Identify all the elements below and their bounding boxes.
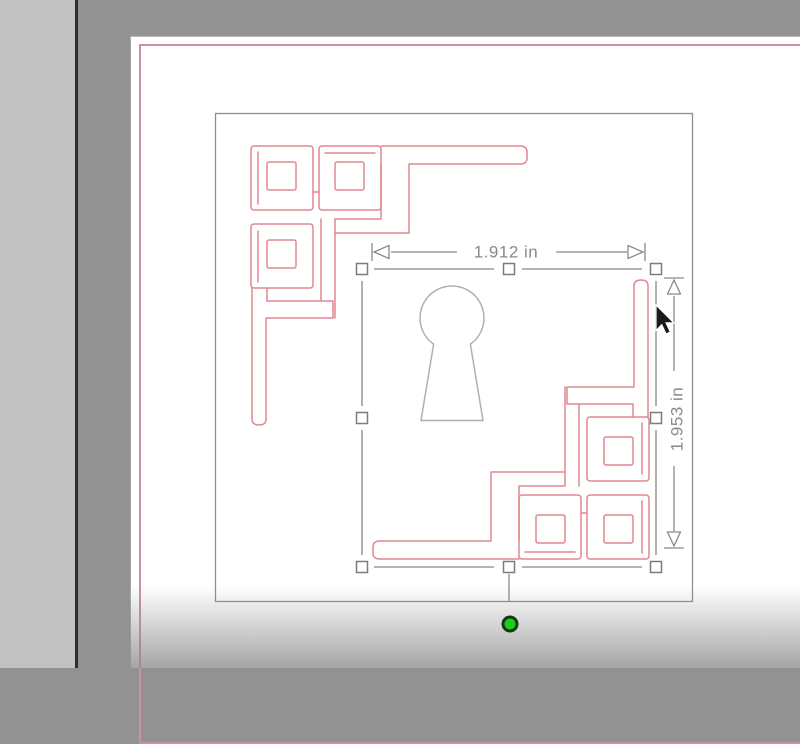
selection-handle-bottom-middle[interactable] (504, 562, 515, 573)
width-dim-right-arrow-icon (628, 246, 643, 259)
selection-handle-middle-left[interactable] (357, 413, 368, 424)
height-dim-up-arrow-icon (668, 280, 681, 294)
design-canvas-overlay: 1.912 in 1.953 in (0, 0, 800, 668)
width-dimension-label: 1.912 in (474, 243, 539, 262)
arrow-pointer-icon (656, 305, 674, 334)
selection-handle-bottom-left[interactable] (357, 562, 368, 573)
selection-handle-top-right[interactable] (651, 264, 662, 275)
keyhole-shape[interactable] (420, 286, 484, 420)
selection-handle-bottom-right[interactable] (651, 562, 662, 573)
width-dimension: 1.912 in (372, 243, 645, 262)
height-dimension-label: 1.953 in (668, 387, 687, 452)
selection-handle-middle-right[interactable] (651, 413, 662, 424)
selection-handle-top-left[interactable] (357, 264, 368, 275)
height-dim-down-arrow-icon (668, 532, 681, 546)
corner-flourish-bottom-right[interactable] (373, 280, 649, 559)
canvas-workspace: 1.912 in 1.953 in (0, 0, 800, 668)
corner-flourish-top-left[interactable] (251, 146, 527, 425)
width-dim-left-arrow-icon (374, 246, 389, 259)
selection-handle-top-middle[interactable] (504, 264, 515, 275)
rotation-handle[interactable] (503, 617, 517, 631)
design-group-bounding-box (216, 114, 693, 602)
selection-box (362, 269, 656, 567)
selection-edges (362, 269, 656, 567)
